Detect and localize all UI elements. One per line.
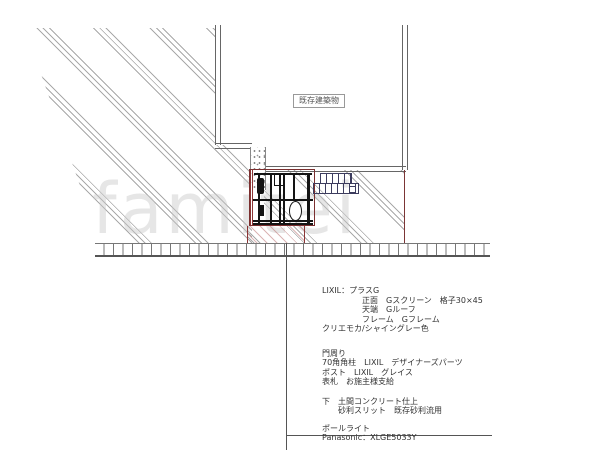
screen-grid-bar [313,173,359,194]
cad-plan-drawing: famitei 既存建築物 LIXIL：プラス [0,0,600,450]
existing-building-label: 既存建築物 [293,94,345,108]
note-line: フレーム Gフレーム [322,315,502,325]
note-line: Panasonic：XLGE5033Y [322,433,502,443]
pillar-light-section [289,201,302,221]
gate-wall-line [250,170,253,225]
building-wall-left [215,25,221,145]
intercom-section [274,174,284,186]
paving-slit-area [247,226,305,243]
note-line: 正面 Gスクリーン 格子30×45 [322,296,502,306]
note-line: 砂利スリット 既存砂利流用 [322,406,502,416]
note-line: 天端 Gルーフ [322,305,502,315]
boundary-line [404,170,405,243]
spec-notes: LIXIL：プラスG 正面 Gスクリーン 格子30×45 天端 Gルーフ フレー… [322,286,502,443]
building-wall-jog [215,143,252,149]
note-line: 下 土間コンクリート仕上 [322,397,502,407]
note-line: ポスト LIXIL グレイス [322,368,502,378]
gate-unit-detail [249,169,315,226]
note-line: クリエモカ/シャイングレー色 [322,324,502,334]
building-wall-right [402,25,408,170]
note-line: 門周り [322,349,502,359]
note-line: 70角角柱 LIXIL デザイナーズパーツ [322,358,502,368]
note-line: 表札 お施主様支給 [322,377,502,387]
note-line: LIXIL：プラスG [322,286,502,296]
note-line: ポールライト [322,424,502,434]
post-section [257,178,264,194]
leader-line-vertical [286,243,287,450]
ground-edge-strip [95,243,490,257]
